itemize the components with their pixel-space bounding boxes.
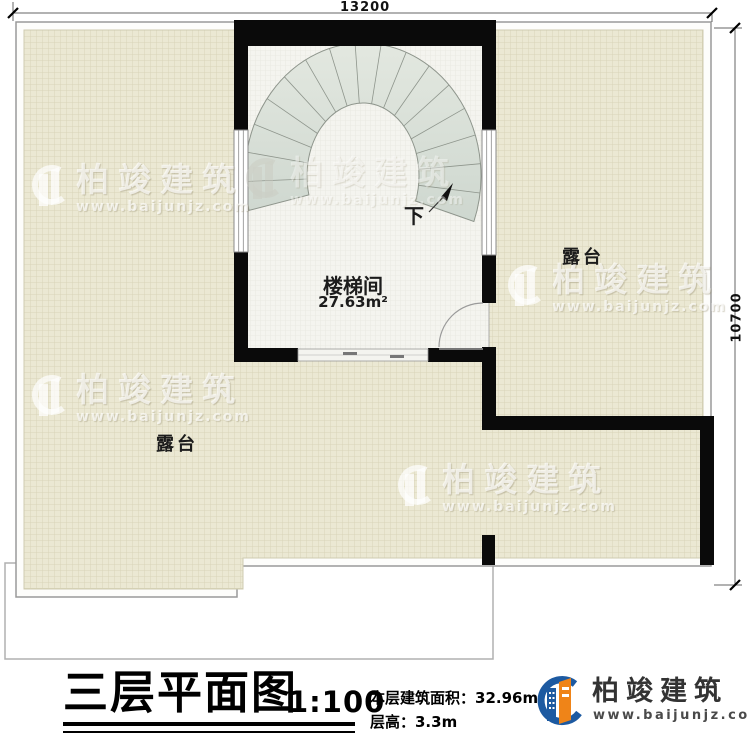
wall-top (234, 20, 496, 46)
company-logo-url: www.baijunjz.com (593, 708, 750, 723)
stair-down-label: 下 (404, 200, 424, 229)
wall-west-upper (234, 20, 248, 130)
terrace-right-label: 露台 (562, 243, 604, 269)
stair-room-area: 27.63m² (318, 293, 388, 311)
page-title: 三层平面图 (63, 670, 298, 715)
title-underline-thin (63, 731, 355, 733)
wall-south-west (234, 348, 298, 362)
title-underline-thick (63, 722, 355, 726)
terrace-bottom-label: 露台 (156, 430, 198, 456)
floor-height-text: 层高：3.3m (370, 711, 457, 732)
floor-plan-drawing (0, 0, 750, 665)
wall-right-vertical (700, 430, 714, 565)
window-east (482, 130, 496, 255)
wall-west-lower (234, 252, 248, 362)
wall-terrace-horizontal (482, 416, 714, 430)
dimension-label-right: 10700 (730, 292, 745, 342)
floor-area-text: 本层建筑面积：32.96m² (370, 687, 545, 708)
dimension-label-top: 13200 (340, 0, 390, 15)
wall-east-upper (482, 20, 496, 130)
company-logo-name: 柏竣建筑 (592, 678, 728, 705)
wall-bottom-stub (482, 535, 495, 565)
south-opening (298, 349, 428, 361)
company-logo-icon (534, 673, 586, 731)
window-west (234, 130, 248, 252)
floor-plan-page: 柏竣建筑 www.baijunjz.com 柏竣建筑 www.baijunjz.… (0, 0, 750, 740)
wall-east-mid (482, 255, 496, 303)
